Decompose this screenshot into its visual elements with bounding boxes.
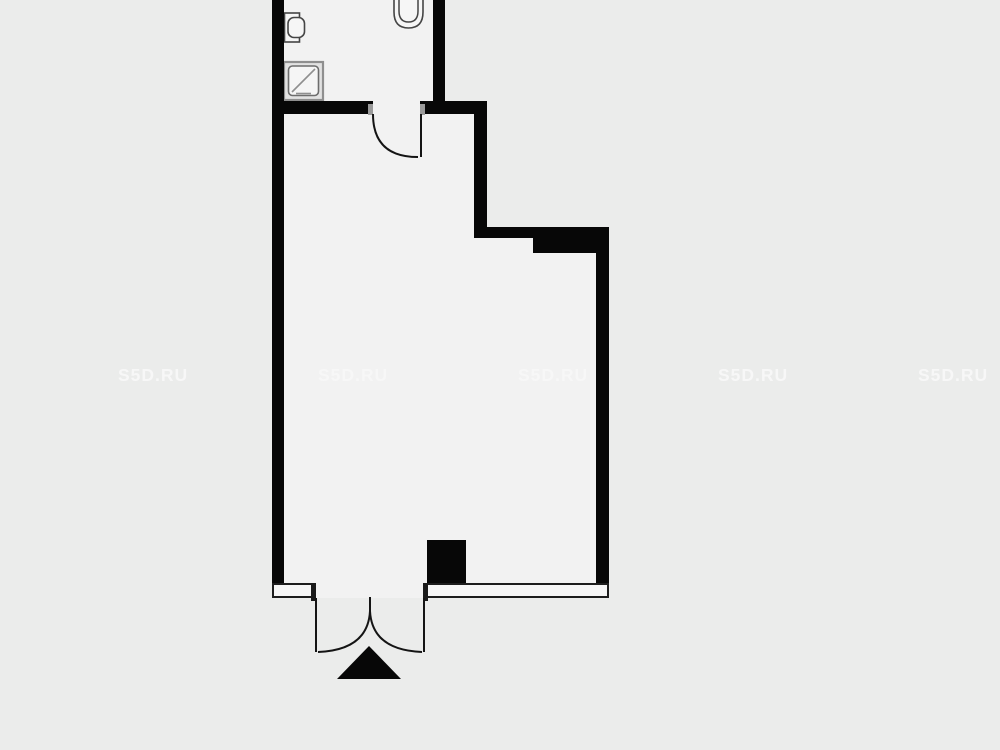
- wall-nook-top-thick: [533, 227, 609, 253]
- wall-bathroom-bottom-left: [284, 101, 373, 114]
- wall-hall-right: [474, 101, 487, 230]
- main-room-interior-right: [487, 238, 596, 598]
- wall-nook-top-thin: [474, 227, 533, 238]
- threshold-right: [424, 584, 608, 597]
- threshold-left: [273, 584, 313, 597]
- watermark-text: S5D.RU: [518, 365, 588, 385]
- watermark-text: S5D.RU: [318, 365, 388, 385]
- door-reveal-tick-right: [420, 104, 425, 115]
- entrance-door-arc-right: [370, 611, 422, 652]
- watermarks: S5D.RU S5D.RU S5D.RU S5D.RU S5D.RU: [118, 365, 988, 385]
- floor-plan: S5D.RU S5D.RU S5D.RU S5D.RU S5D.RU: [0, 0, 1000, 750]
- wall-bathroom-right: [433, 0, 445, 101]
- wall-left: [272, 0, 284, 583]
- entrance-double-door-swing: [316, 597, 424, 652]
- door-reveal-tick-left: [368, 104, 373, 115]
- watermark-text: S5D.RU: [718, 365, 788, 385]
- basin-bowl: [288, 18, 305, 38]
- watermark-text: S5D.RU: [918, 365, 988, 385]
- shower-tray-icon: [284, 62, 323, 100]
- floor-plan-canvas: S5D.RU S5D.RU S5D.RU S5D.RU S5D.RU: [0, 0, 1000, 750]
- wall-right: [596, 253, 609, 583]
- main-room-interior-left: [284, 101, 487, 598]
- wall-pier-bottom: [427, 540, 466, 583]
- toilet-icon: [394, 0, 423, 28]
- entrance-arrow-icon: [337, 646, 401, 679]
- entrance-door-arc-left: [318, 611, 370, 652]
- watermark-text: S5D.RU: [118, 365, 188, 385]
